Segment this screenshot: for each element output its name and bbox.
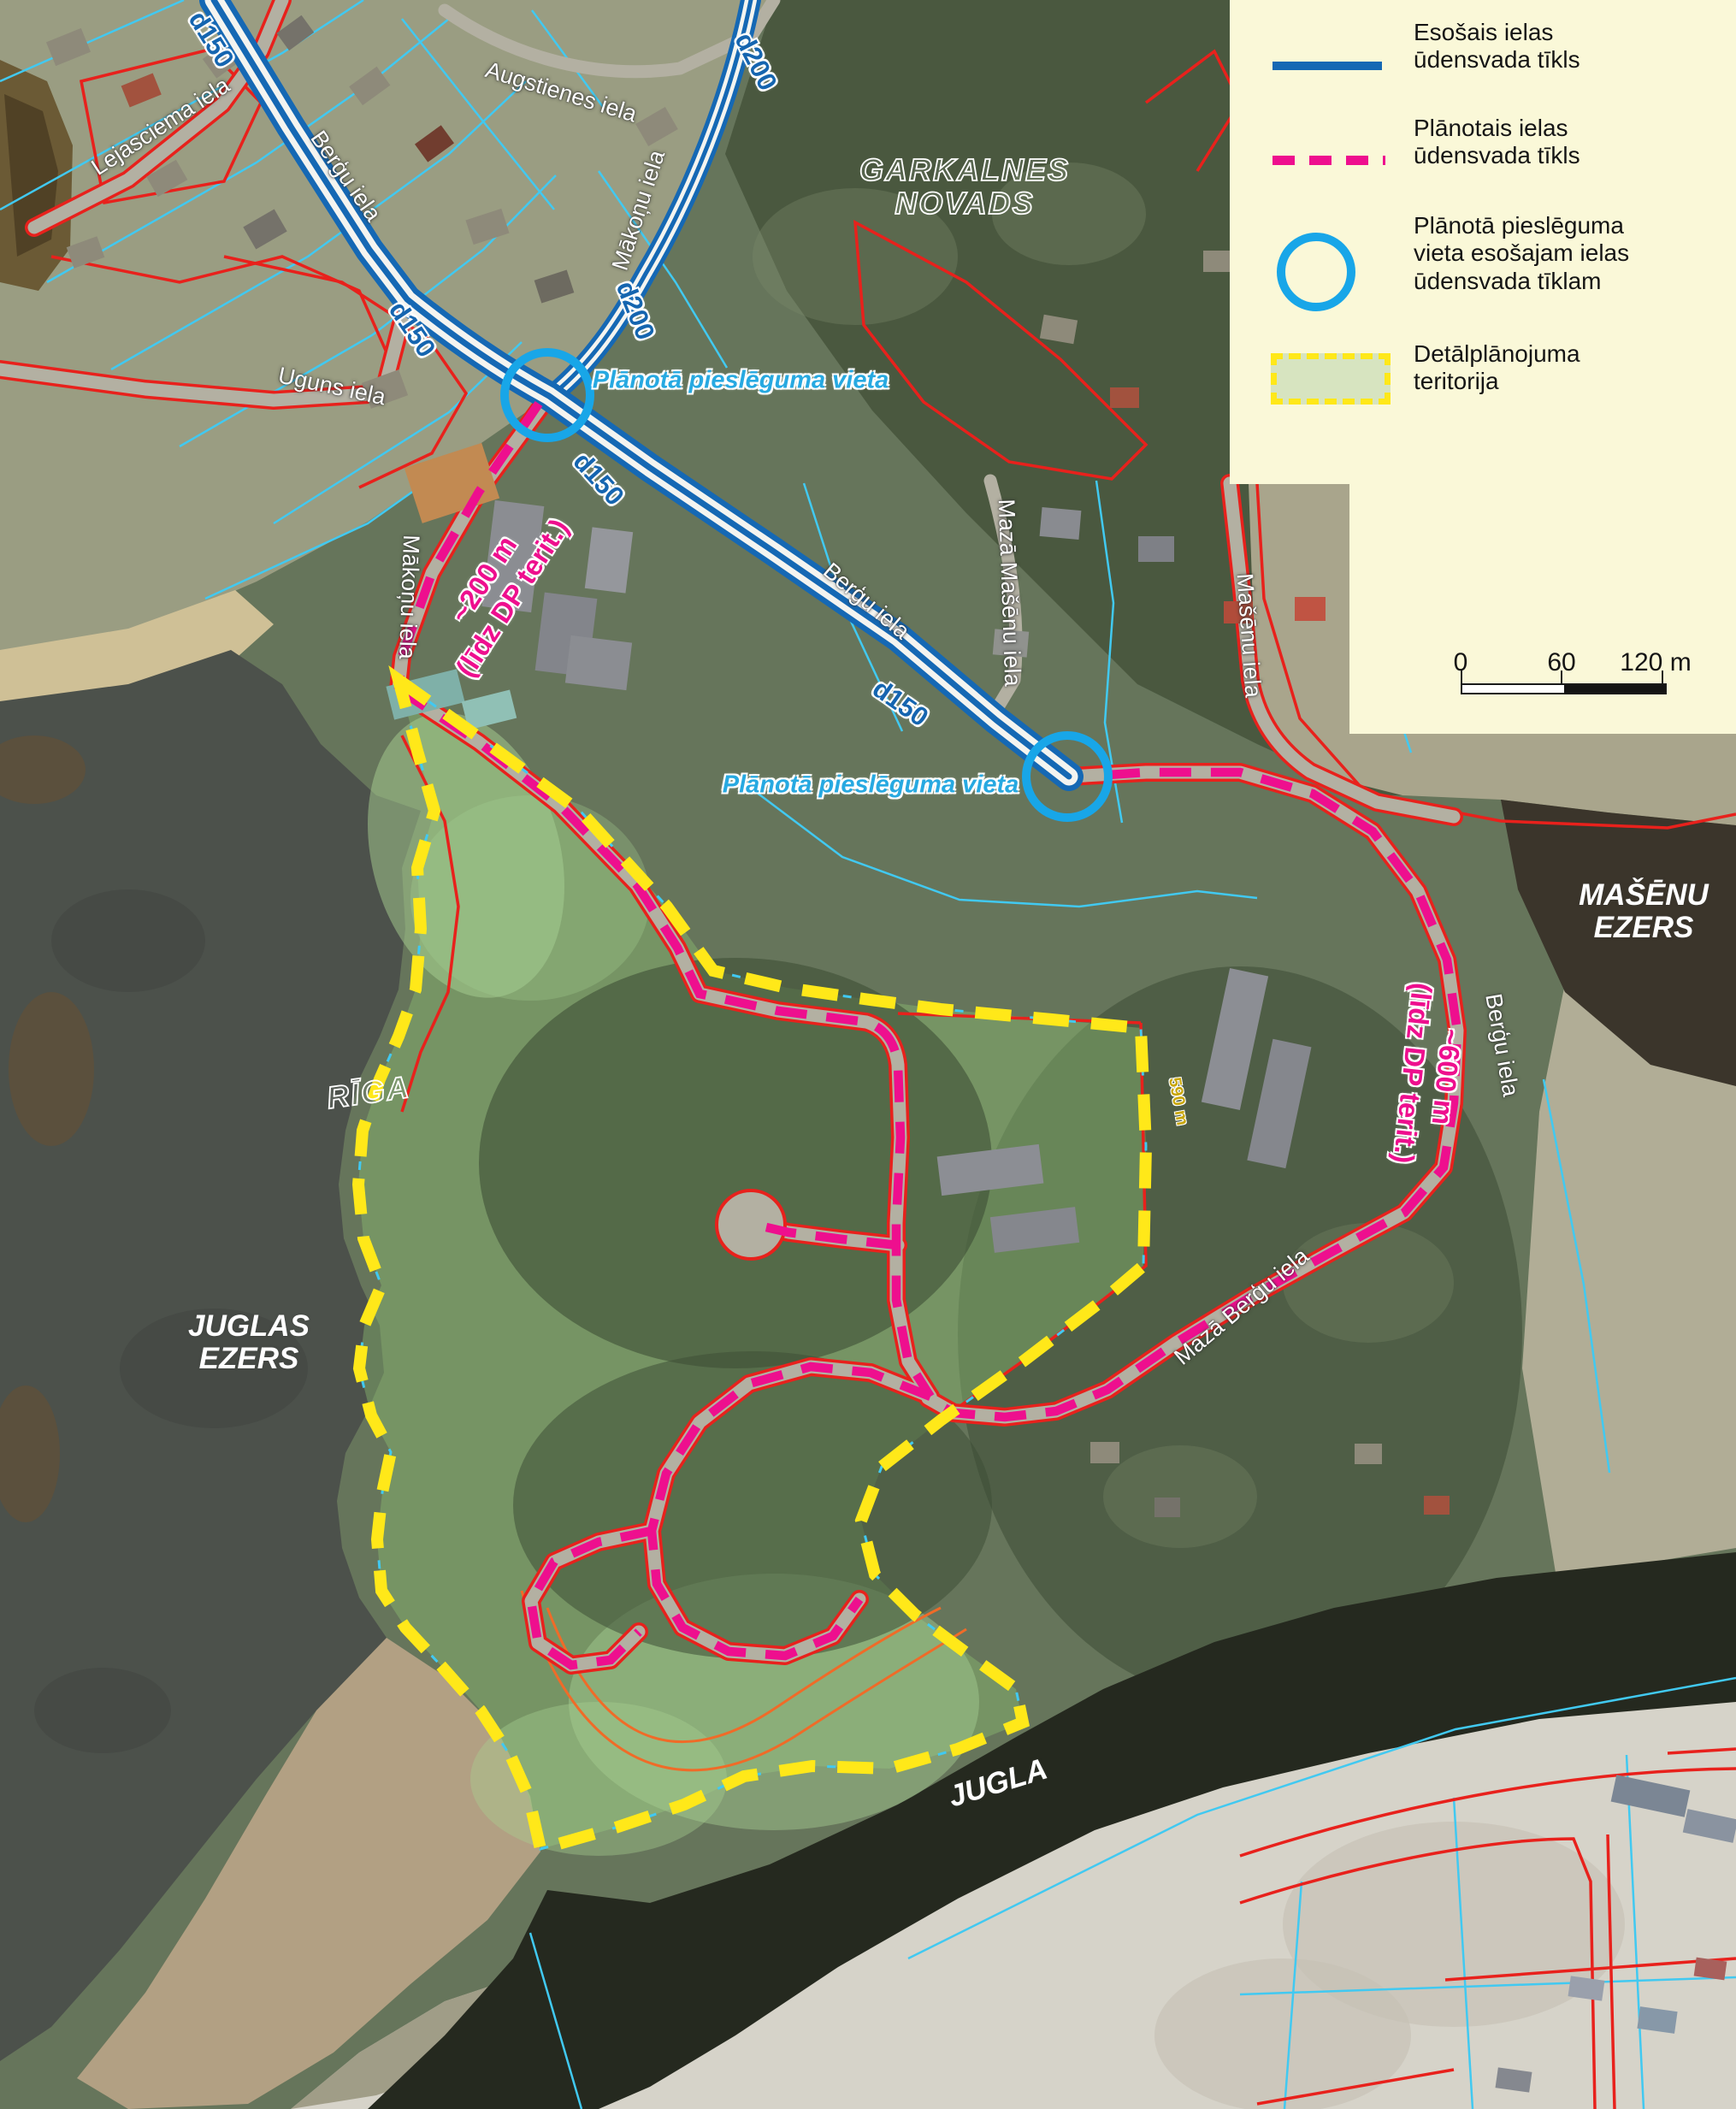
legend-panel: Esošais ielas ūdensvada tīkls Plānotais … [1230, 0, 1736, 484]
scale-bar [1461, 683, 1667, 694]
existing-network-line-symbol [1272, 62, 1382, 70]
plan-map-canvas: GARKALNES NOVADSRĪGAJUGLAS EZERSMAŠĒNU E… [0, 0, 1736, 2109]
legend-item-label: Plānotā pieslēguma vieta esošajam ielas … [1414, 212, 1629, 295]
territory-area-symbol [1271, 353, 1391, 405]
planned-network-dash-symbol [1272, 156, 1385, 165]
legend-item-label: Detālplānojuma teritorija [1414, 340, 1580, 396]
legend-item-label: Plānotais ielas ūdensvada tīkls [1414, 115, 1580, 170]
scale-bar-filled-half [1564, 685, 1666, 693]
scale-tick [1662, 671, 1663, 684]
connection-point-circle-symbol [1277, 233, 1355, 311]
legend-item-label: Esošais ielas ūdensvada tīkls [1414, 19, 1580, 74]
scale-tick-label: 120 m [1620, 648, 1691, 677]
scale-tick [1461, 671, 1462, 684]
scale-tick [1561, 671, 1562, 684]
scale-bar-panel: 0 60 120 m [1349, 484, 1736, 734]
